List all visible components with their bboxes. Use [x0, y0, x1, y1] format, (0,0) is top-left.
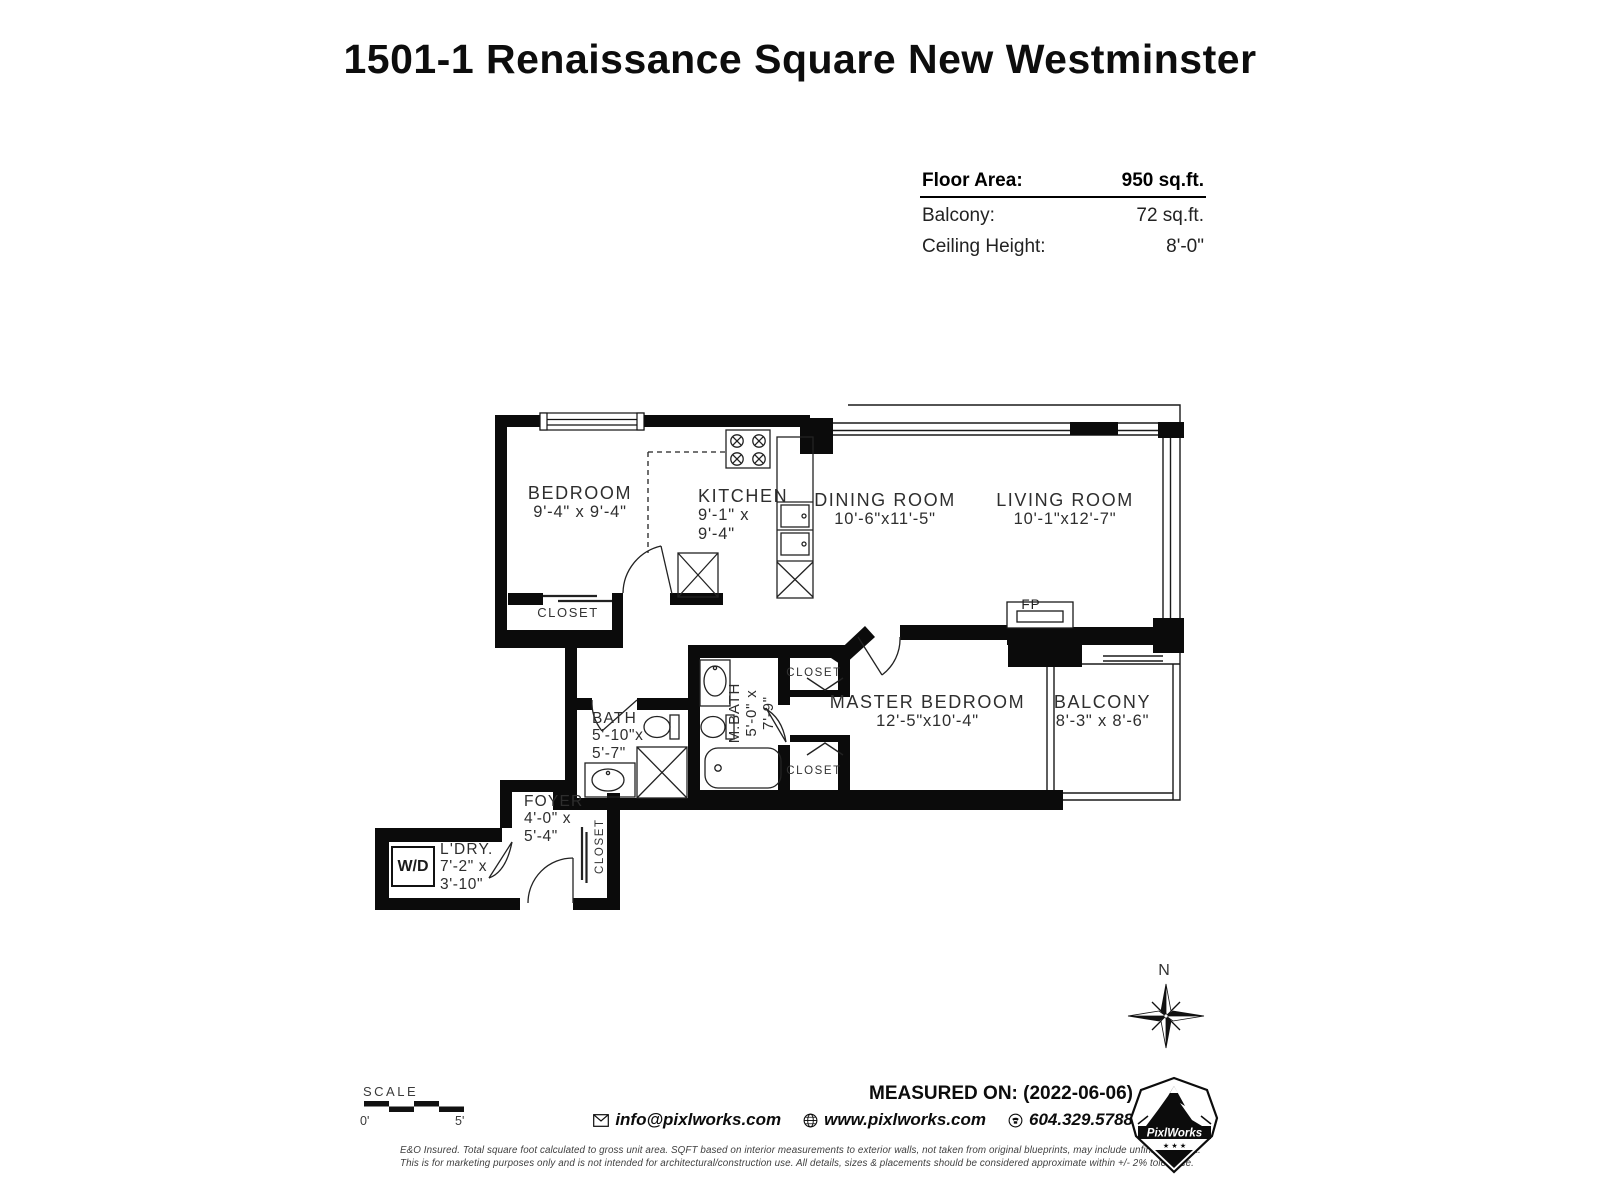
room-balcony: BALCONY 8'-3" x 8'-6": [1040, 692, 1165, 731]
bedroom-dims: 9'-4" x 9'-4": [495, 503, 665, 521]
phone-icon: [1008, 1113, 1023, 1128]
info-row-ceiling: Ceiling Height: 8'-0": [920, 231, 1206, 262]
logo-stars: ★ ★ ★: [1163, 1142, 1186, 1150]
info-panel: Floor Area: 950 sq.ft. Balcony: 72 sq.ft…: [920, 165, 1206, 262]
scale-label: SCALE: [363, 1084, 418, 1099]
disclaimer-line-1: E&O Insured. Total square foot calculate…: [400, 1145, 1150, 1156]
scale-end: 5': [455, 1114, 464, 1128]
washer-dryer-label: W/D: [397, 858, 428, 876]
mbath-name: M.BATH: [726, 653, 743, 773]
room-bedroom: BEDROOM 9'-4" x 9'-4": [495, 483, 665, 522]
floorplan-drawing: [370, 390, 1190, 910]
washer-dryer: W/D: [391, 846, 435, 887]
laundry-dims-2: 3'-10": [440, 876, 520, 893]
room-master-bath: M.BATH 5'-0" x 7'-9": [726, 653, 778, 773]
laundry-dims-1: 7'-2" x: [440, 858, 520, 875]
laundry-name: L'DRY.: [440, 841, 520, 858]
email-icon: [593, 1114, 609, 1127]
email-text: info@pixlworks.com: [615, 1110, 781, 1130]
info-row-balcony: Balcony: 72 sq.ft.: [920, 200, 1206, 231]
foyer-name: FOYER: [524, 793, 604, 810]
kitchen-name: KITCHEN: [698, 486, 798, 506]
living-name: LIVING ROOM: [980, 490, 1150, 510]
floor-area-label: Floor Area:: [922, 170, 1023, 192]
room-living: LIVING ROOM 10'-1"x12'-7": [980, 490, 1150, 529]
closet-master-1-label: CLOSET: [786, 667, 842, 679]
contact-email: info@pixlworks.com: [593, 1110, 781, 1130]
floor-area-value: 950 sq.ft.: [1122, 170, 1204, 192]
closet-bedroom-label: CLOSET: [528, 605, 608, 620]
balcony-label: Balcony:: [922, 205, 995, 227]
website-text: www.pixlworks.com: [824, 1110, 986, 1130]
measured-on: MEASURED ON: (2022-06-06): [700, 1083, 1133, 1105]
master-dims: 12'-5"x10'-4": [825, 712, 1030, 730]
phone-text: 604.329.5788: [1029, 1110, 1133, 1130]
disclaimer-line-2: This is for marketing purposes only and …: [400, 1158, 1150, 1169]
room-laundry: L'DRY. 7'-2" x 3'-10": [440, 841, 520, 893]
page-title: 1501-1 Renaissance Square New Westminste…: [0, 36, 1600, 83]
bath-name: BATH: [592, 710, 662, 727]
dining-dims: 10'-6"x11'-5": [800, 510, 970, 528]
room-master: MASTER BEDROOM 12'-5"x10'-4": [825, 692, 1030, 731]
globe-icon: [803, 1113, 818, 1128]
room-foyer: FOYER 4'-0" x 5'-4": [524, 793, 604, 845]
logo-text: PixlWorks: [1147, 1128, 1202, 1140]
bath-dims-1: 5'-10"x: [592, 727, 662, 744]
balcony-value: 72 sq.ft.: [1136, 205, 1204, 227]
scale-bar: [363, 1100, 465, 1113]
floorplan-page: 1501-1 Renaissance Square New Westminste…: [0, 0, 1600, 1200]
ceiling-height-label: Ceiling Height:: [922, 236, 1046, 258]
scale-start: 0': [360, 1114, 369, 1128]
mbath-dims-2: 7'-9": [760, 653, 777, 773]
bedroom-name: BEDROOM: [495, 483, 665, 503]
dining-name: DINING ROOM: [800, 490, 970, 510]
master-name: MASTER BEDROOM: [825, 692, 1030, 712]
pixlworks-logo: PixlWorks ★ ★ ★: [1128, 1076, 1221, 1174]
room-dining: DINING ROOM 10'-6"x11'-5": [800, 490, 970, 529]
kitchen-dims-2: 9'-4": [698, 525, 798, 543]
room-kitchen: KITCHEN 9'-1" x 9'-4": [698, 486, 798, 543]
closet-master-2-label: CLOSET: [786, 765, 842, 777]
closet-foyer-label: CLOSET: [594, 826, 606, 874]
kitchen-dims-1: 9'-1" x: [698, 506, 798, 524]
ceiling-height-value: 8'-0": [1166, 236, 1204, 258]
info-row-floor-area: Floor Area: 950 sq.ft.: [920, 165, 1206, 198]
compass-north-label: N: [1142, 962, 1186, 980]
foyer-dims-1: 4'-0" x: [524, 810, 604, 827]
contact-phone: 604.329.5788: [1008, 1110, 1133, 1130]
living-dims: 10'-1"x12'-7": [980, 510, 1150, 528]
contact-line: info@pixlworks.com www.pixlworks.com 604…: [620, 1110, 1133, 1130]
foyer-dims-2: 5'-4": [524, 828, 604, 845]
room-bath: BATH 5'-10"x 5'-7": [592, 710, 662, 762]
fireplace-label: FP: [1010, 597, 1052, 612]
mbath-dims-1: 5'-0" x: [743, 653, 760, 773]
compass-rose-icon: [1126, 980, 1206, 1052]
balcony-name: BALCONY: [1040, 692, 1165, 712]
balcony-dims: 8'-3" x 8'-6": [1040, 712, 1165, 730]
bath-dims-2: 5'-7": [592, 745, 662, 762]
contact-website: www.pixlworks.com: [803, 1110, 986, 1130]
bedroom-window: [540, 413, 644, 430]
